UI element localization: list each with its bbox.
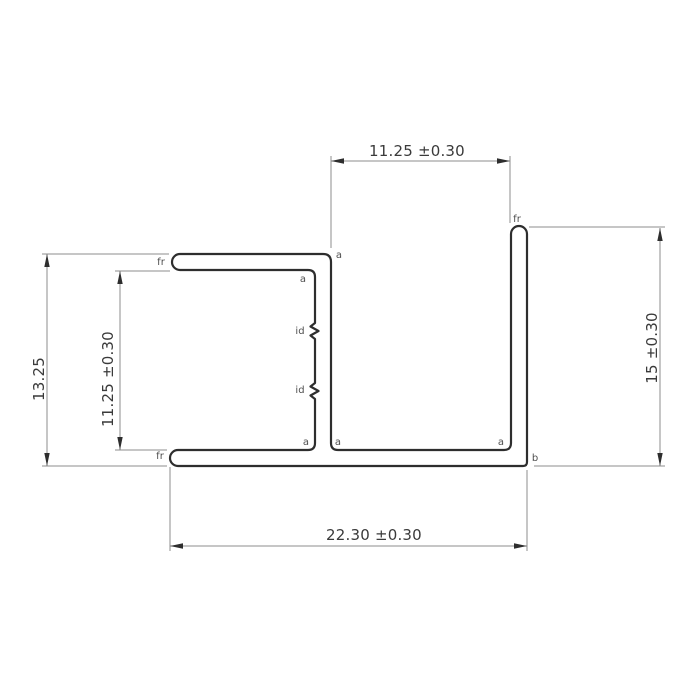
dim-top-width-value: 11.25 ±0.30 bbox=[369, 142, 465, 160]
technical-drawing: 11.25 ±0.30 15 ±0.30 13.25 11 bbox=[0, 0, 700, 700]
label-b-bottom-right-corner: b bbox=[532, 453, 538, 464]
arrow-left-icon bbox=[331, 158, 344, 163]
label-fr-bottom-flange: fr bbox=[156, 451, 165, 462]
drawing-canvas: 11.25 ±0.30 15 ±0.30 13.25 11 bbox=[0, 0, 700, 700]
dim-left-outer-height-value: 13.25 bbox=[30, 357, 48, 401]
arrow-up-icon bbox=[117, 271, 122, 284]
label-a-bottom-left-inner-corner: a bbox=[303, 437, 309, 448]
label-a-top-outer-corner: a bbox=[336, 250, 342, 261]
dim-bottom-width-value: 22.30 ±0.30 bbox=[326, 526, 422, 544]
point-labels: fr fr fr a a a a a b id id bbox=[156, 214, 538, 464]
label-a-bottom-right-inner-corner: a bbox=[498, 437, 504, 448]
label-id-lower-mark: id bbox=[295, 385, 304, 396]
dim-right-height-value: 15 ±0.30 bbox=[643, 312, 661, 383]
arrow-right-icon bbox=[514, 543, 527, 548]
label-fr-top-flange: fr bbox=[157, 257, 166, 268]
arrow-left-icon bbox=[170, 543, 183, 548]
label-a-top-inner-corner: a bbox=[300, 274, 306, 285]
arrow-right-icon bbox=[497, 158, 510, 163]
dim-left-inner-height-value: 11.25 ±0.30 bbox=[99, 331, 117, 427]
arrow-down-icon bbox=[117, 437, 122, 450]
dimension-bottom-width: 22.30 ±0.30 bbox=[170, 467, 527, 551]
dimension-left-inner-height: 11.25 ±0.30 bbox=[99, 271, 170, 450]
profile-outline bbox=[170, 226, 527, 466]
label-a-bottom-mid-inner-corner: a bbox=[335, 437, 341, 448]
label-id-upper-mark: id bbox=[295, 326, 304, 337]
label-fr-right-leg: fr bbox=[513, 214, 522, 225]
dimension-right-height: 15 ±0.30 bbox=[529, 227, 665, 466]
arrow-up-icon bbox=[44, 254, 49, 267]
arrow-up-icon bbox=[657, 228, 662, 241]
arrow-down-icon bbox=[44, 453, 49, 466]
dimension-top-width: 11.25 ±0.30 bbox=[331, 142, 510, 248]
arrow-down-icon bbox=[657, 453, 662, 466]
